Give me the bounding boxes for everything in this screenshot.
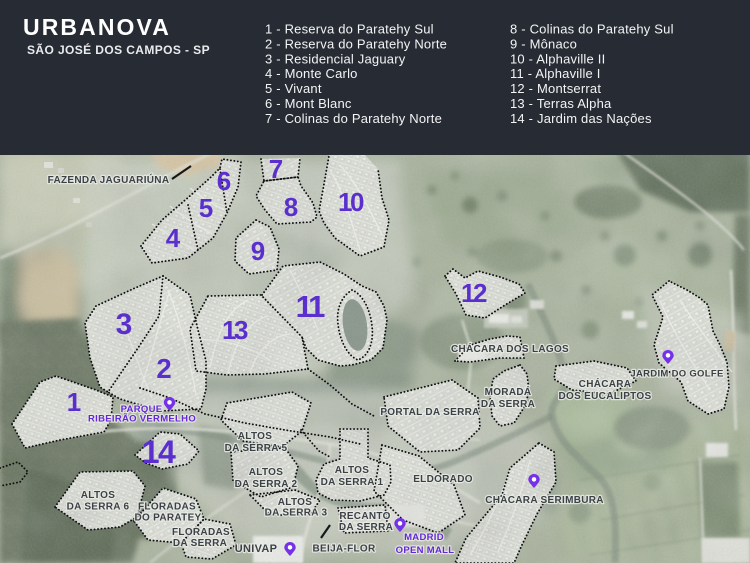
svg-text:9: 9 (251, 236, 265, 266)
svg-text:FLORADAS: FLORADAS (172, 527, 230, 538)
svg-text:1 - Reserva do Paratehy Sul: 1 - Reserva do Paratehy Sul (265, 22, 434, 37)
svg-text:OPEN MALL: OPEN MALL (396, 545, 455, 556)
svg-text:ALTOS: ALTOS (278, 497, 312, 508)
svg-text:11 - Alphaville I: 11 - Alphaville I (510, 66, 601, 81)
svg-text:8: 8 (284, 192, 298, 222)
svg-text:SÃO JOSÉ DOS CAMPOS - SP: SÃO JOSÉ DOS CAMPOS - SP (27, 42, 210, 57)
svg-text:CHÁCARA: CHÁCARA (579, 377, 632, 390)
svg-text:7: 7 (269, 154, 283, 184)
svg-text:13 - Terras Alpha: 13 - Terras Alpha (510, 96, 612, 111)
svg-text:FLORADAS: FLORADAS (138, 502, 196, 513)
svg-text:10 - Alphaville II: 10 - Alphaville II (510, 51, 605, 66)
svg-text:ALTOS: ALTOS (238, 431, 272, 442)
svg-text:CHÁCARA SERIMBURA: CHÁCARA SERIMBURA (485, 493, 604, 506)
svg-text:DA SERRA 6: DA SERRA 6 (67, 502, 130, 513)
svg-text:13: 13 (222, 315, 248, 345)
svg-text:14 - Jardim das Nações: 14 - Jardim das Nações (510, 111, 652, 126)
svg-text:8 - Colinas do Paratehy Sul: 8 - Colinas do Paratehy Sul (510, 22, 674, 37)
svg-text:11: 11 (296, 289, 326, 324)
svg-text:URBANOVA: URBANOVA (23, 14, 171, 40)
svg-text:3 - Residencial Jaguary: 3 - Residencial Jaguary (265, 51, 406, 66)
svg-text:5 - Vivant: 5 - Vivant (265, 81, 322, 96)
svg-text:6: 6 (217, 166, 231, 196)
svg-text:ALTOS: ALTOS (81, 490, 115, 501)
svg-text:3: 3 (116, 308, 133, 341)
svg-text:DA SERRA 1: DA SERRA 1 (321, 477, 384, 488)
svg-text:UNIVAP: UNIVAP (235, 543, 278, 555)
svg-text:ALTOS: ALTOS (249, 467, 283, 478)
svg-text:DA SERRA 2: DA SERRA 2 (235, 479, 298, 490)
svg-text:RIBEIRÃO VERMELHO: RIBEIRÃO VERMELHO (88, 414, 196, 425)
svg-text:7 - Colinas do Paratehy Norte: 7 - Colinas do Paratehy Norte (265, 111, 442, 126)
svg-text:BEIJA-FLOR: BEIJA-FLOR (313, 544, 376, 555)
svg-text:DA SERRA 5: DA SERRA 5 (225, 443, 288, 454)
svg-text:RECANTO: RECANTO (339, 511, 390, 522)
svg-text:CHÁCARA DOS LAGOS: CHÁCARA DOS LAGOS (451, 342, 569, 355)
svg-text:MADRID: MADRID (404, 532, 444, 543)
svg-text:9 - Mônaco: 9 - Mônaco (510, 36, 577, 51)
svg-text:12 - Montserrat: 12 - Montserrat (510, 81, 601, 96)
svg-text:1: 1 (67, 387, 81, 417)
svg-text:ALTOS: ALTOS (335, 465, 369, 476)
svg-text:JARDIM DO GOLFE: JARDIM DO GOLFE (630, 369, 723, 380)
svg-text:DA SERRA 3: DA SERRA 3 (265, 508, 328, 519)
svg-text:PORTAL DA SERRA: PORTAL DA SERRA (380, 407, 479, 418)
svg-text:MORADÁ: MORADÁ (485, 385, 532, 398)
svg-text:4: 4 (166, 223, 181, 253)
svg-text:FAZENDA JAGUARIÚNA: FAZENDA JAGUARIÚNA (48, 173, 170, 186)
svg-text:14: 14 (142, 434, 176, 470)
svg-text:4 - Monte Carlo: 4 - Monte Carlo (265, 66, 358, 81)
svg-text:12: 12 (461, 278, 487, 308)
svg-text:2: 2 (156, 353, 171, 384)
svg-text:DA SERRA: DA SERRA (339, 522, 393, 533)
svg-text:2 - Reserva do Paratehy Norte: 2 - Reserva do Paratehy Norte (265, 36, 447, 51)
svg-text:DOS EUCALIPTOS: DOS EUCALIPTOS (559, 391, 652, 402)
svg-text:6 - Mont Blanc: 6 - Mont Blanc (265, 96, 352, 111)
svg-text:ELDORADO: ELDORADO (413, 474, 473, 485)
svg-text:5: 5 (199, 193, 213, 223)
svg-text:DO PARATEY: DO PARATEY (134, 513, 201, 524)
svg-text:DA SERRA: DA SERRA (481, 399, 535, 410)
svg-text:DA SERRA: DA SERRA (173, 538, 227, 549)
svg-text:10: 10 (338, 187, 364, 217)
